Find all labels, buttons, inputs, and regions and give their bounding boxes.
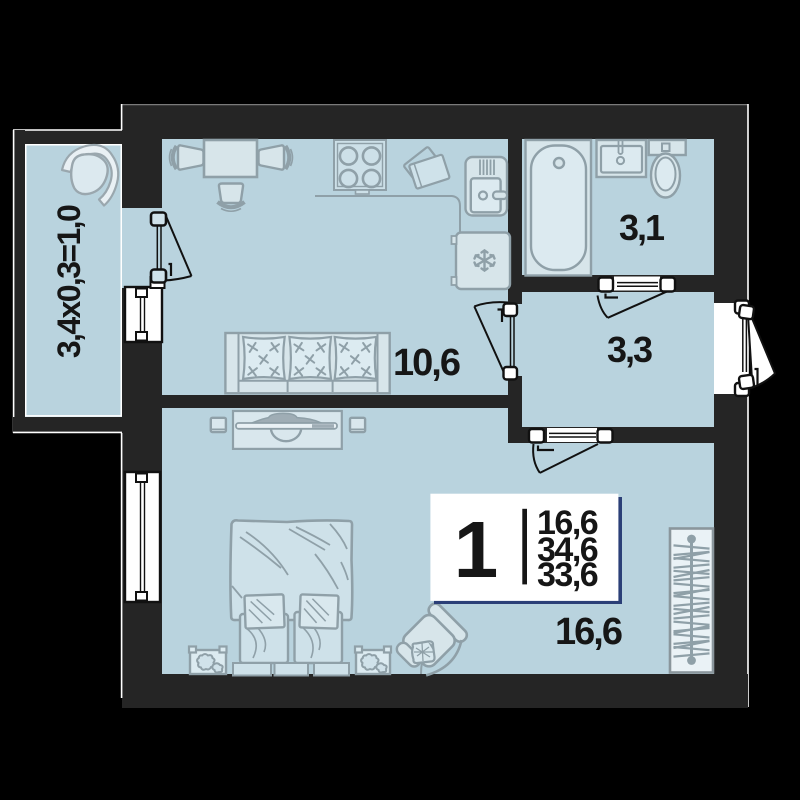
svg-text:10,6: 10,6: [393, 342, 460, 384]
svg-text:33,6: 33,6: [537, 556, 598, 594]
svg-text:3,3: 3,3: [607, 329, 652, 370]
svg-text:3,1: 3,1: [619, 207, 665, 248]
svg-text:16,6: 16,6: [555, 611, 622, 653]
svg-text:3,4x0,3=1,0: 3,4x0,3=1,0: [51, 205, 87, 358]
svg-text:1: 1: [454, 505, 499, 594]
